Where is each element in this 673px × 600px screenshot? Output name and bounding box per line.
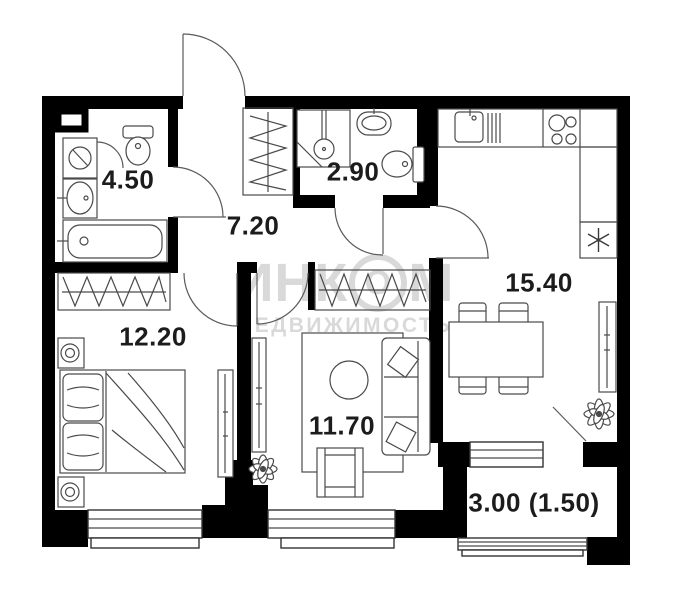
bed <box>60 370 185 473</box>
balcony-window <box>458 538 587 556</box>
room-area-label-hallway: 7.20 <box>227 211 280 242</box>
wc-toilet <box>382 147 424 182</box>
living-room-door <box>257 273 308 324</box>
room-area-label-bathroom: 4.50 <box>102 165 155 196</box>
room-area-label-living: 11.70 <box>309 411 375 442</box>
kitchen-sink <box>455 109 500 143</box>
nightstand <box>58 338 84 368</box>
room-area-label-kitchen: 15.40 <box>505 268 573 299</box>
kitchen-counter <box>438 109 617 222</box>
kitchen-balcony-window <box>470 442 543 467</box>
bedroom-wardrobe <box>58 273 170 310</box>
stove <box>549 115 576 144</box>
bedroom-door <box>184 273 237 326</box>
dining-table <box>449 322 543 377</box>
plant <box>584 399 614 429</box>
kitchen-cabinet <box>599 302 616 392</box>
vent-shaft <box>58 111 85 129</box>
hall-closet <box>315 270 430 310</box>
living-room-window <box>268 510 395 548</box>
bedroom-cabinet <box>218 370 233 477</box>
balcony-door <box>553 407 586 441</box>
bathroom-sink <box>57 179 97 218</box>
nightstand <box>58 477 84 507</box>
room-area-label-shower-wc: 2.90 <box>327 157 380 188</box>
room-area-label-balcony: 3.00 (1.50) <box>468 488 599 519</box>
coffee-table <box>330 361 368 399</box>
entrance-door <box>183 34 245 96</box>
plant <box>249 455 277 483</box>
refrigerator <box>580 222 617 258</box>
hallway-wardrobe <box>243 108 293 195</box>
bedroom-window <box>88 510 202 548</box>
armchair <box>317 448 363 497</box>
floor-plan: ИНКОМ НЕДВИЖИМОСТЬ <box>0 0 673 600</box>
wc-sink <box>357 108 391 135</box>
toilet <box>123 126 153 165</box>
sofa <box>382 338 430 455</box>
shower-wc-door <box>335 208 383 255</box>
bathroom-door <box>173 167 226 217</box>
kitchen-door <box>436 206 489 258</box>
room-area-label-bedroom: 12.20 <box>119 322 187 353</box>
hall-cabinet <box>252 338 266 452</box>
bathtub <box>57 220 167 262</box>
